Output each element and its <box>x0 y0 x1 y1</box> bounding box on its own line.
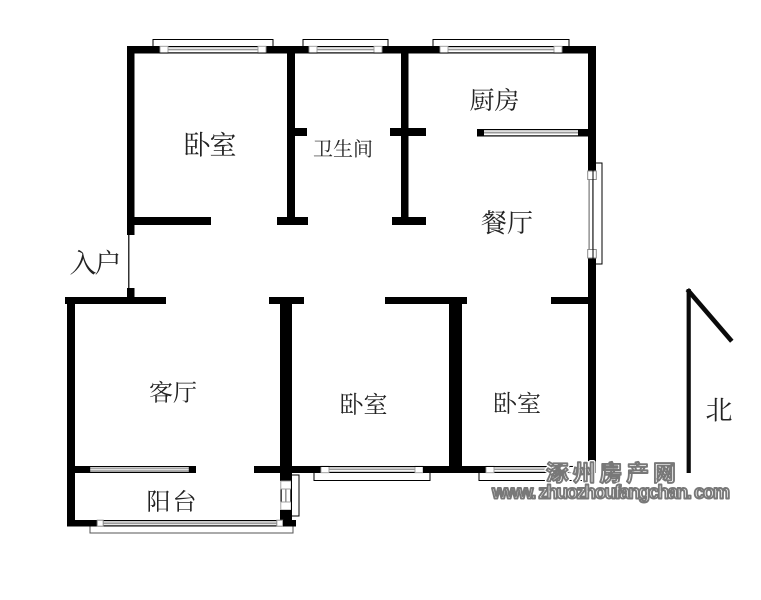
svg-text:www. zhuozhoufangchan. com: www. zhuozhoufangchan. com <box>491 483 730 504</box>
